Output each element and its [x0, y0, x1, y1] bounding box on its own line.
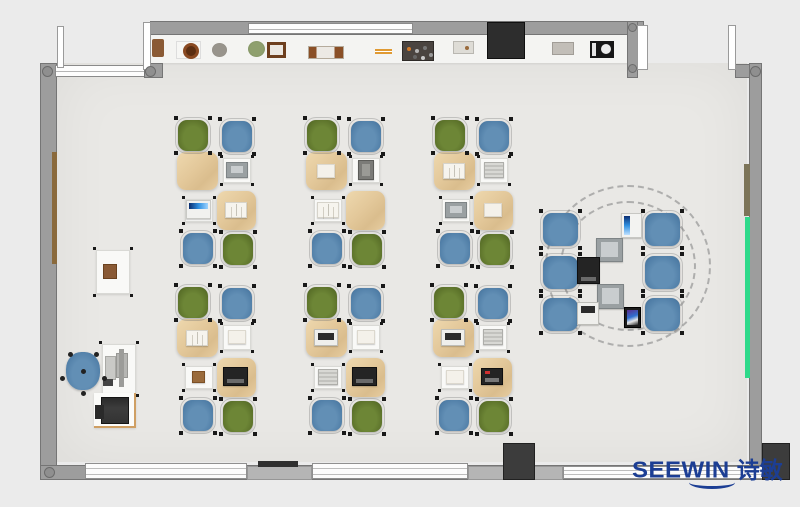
- furniture-foot: [213, 264, 217, 268]
- door-frame-d: [728, 25, 736, 70]
- furniture-foot: [641, 294, 645, 298]
- furniture-foot: [539, 209, 543, 213]
- furniture-foot: [93, 294, 96, 297]
- furniture-foot: [430, 283, 434, 287]
- desk-item-laptop-dark-red: [481, 368, 503, 385]
- collab-device-phone-color: [624, 307, 641, 328]
- furniture-foot: [464, 318, 468, 322]
- furniture-foot: [342, 222, 345, 225]
- furniture-foot: [342, 229, 346, 233]
- furniture-foot: [220, 183, 223, 186]
- furniture-foot: [218, 284, 222, 288]
- furniture-foot: [253, 397, 257, 401]
- furniture-foot: [510, 265, 514, 269]
- furniture-foot: [303, 151, 307, 155]
- student-chair-blue: [222, 121, 252, 152]
- window-top: [248, 23, 413, 34]
- desk-item-book: [186, 330, 208, 346]
- desk-item-laptop-dark: [223, 367, 248, 386]
- furniture-foot: [348, 265, 352, 269]
- shelf-item-ring-pot: [176, 41, 201, 59]
- furniture-foot: [337, 116, 341, 120]
- board-green-right: [745, 217, 750, 378]
- furniture-foot: [475, 397, 479, 401]
- furniture-foot: [130, 247, 133, 250]
- furniture-foot: [182, 196, 185, 199]
- furniture-foot: [342, 396, 346, 400]
- desk-item-paper-small: [192, 371, 205, 383]
- furniture-foot: [435, 431, 439, 435]
- furniture-foot: [252, 152, 256, 156]
- student-chair-blue: [440, 233, 470, 264]
- student-desk-tan: [346, 191, 385, 230]
- furniture-foot: [179, 229, 183, 233]
- furniture-foot: [476, 230, 480, 234]
- furniture-foot: [641, 252, 645, 256]
- student-chair-green: [352, 234, 382, 265]
- furniture-foot: [252, 117, 256, 121]
- furniture-foot: [539, 252, 543, 256]
- desk-item-laptop-white: [441, 329, 465, 346]
- furniture-foot: [218, 117, 222, 121]
- furniture-foot: [347, 319, 351, 323]
- furniture-foot: [430, 318, 434, 322]
- collab-device-laptop-gray: [596, 238, 623, 262]
- furniture-foot: [219, 397, 223, 401]
- furniture-foot: [539, 294, 543, 298]
- furniture-foot: [219, 230, 223, 234]
- furniture-foot: [251, 350, 254, 353]
- desk-item-laptop-dark: [352, 367, 377, 386]
- student-chair-blue: [183, 233, 213, 264]
- furniture-foot: [218, 152, 222, 156]
- furniture-foot: [470, 222, 473, 225]
- furniture-foot: [342, 264, 346, 268]
- desk-item-laptop-gray: [226, 162, 248, 178]
- furniture-foot: [680, 331, 684, 335]
- furniture-foot: [431, 116, 435, 120]
- desk-item-paper: [484, 203, 502, 217]
- furniture-foot: [182, 222, 185, 225]
- seewin-logo: SEEWIN 诗敏: [632, 451, 783, 485]
- furniture-foot: [213, 222, 216, 225]
- furniture-foot: [303, 318, 307, 322]
- furniture-foot: [342, 389, 345, 392]
- furniture-foot: [510, 230, 514, 234]
- shelf-item-vase: [152, 39, 164, 57]
- furniture-foot: [342, 196, 345, 199]
- board-olive-right: [744, 164, 750, 216]
- furniture-foot: [469, 389, 472, 392]
- pier-cap-topright: [750, 66, 761, 77]
- furniture-foot: [253, 265, 257, 269]
- furniture-foot: [253, 432, 257, 436]
- furniture-foot: [438, 389, 441, 392]
- desk-item-book: [317, 202, 339, 218]
- furniture-foot: [348, 432, 352, 436]
- furniture-foot: [578, 209, 582, 213]
- furniture-foot: [477, 183, 480, 186]
- furniture-foot: [251, 183, 254, 186]
- furniture-foot: [381, 319, 385, 323]
- furniture-foot: [342, 431, 346, 435]
- furniture-foot: [308, 264, 312, 268]
- furniture-foot: [474, 284, 478, 288]
- furniture-foot: [381, 117, 385, 121]
- furniture-foot: [509, 397, 513, 401]
- furniture-foot: [174, 318, 178, 322]
- cabinet-top: [487, 22, 525, 59]
- furniture-foot: [470, 229, 474, 233]
- furniture-foot: [253, 230, 257, 234]
- furniture-foot: [380, 350, 383, 353]
- student-chair-green: [307, 287, 337, 318]
- furniture-foot: [174, 151, 178, 155]
- furniture-foot: [509, 117, 513, 121]
- student-chair-green: [223, 401, 253, 432]
- furniture-foot: [475, 152, 479, 156]
- furniture-foot: [509, 432, 513, 436]
- student-chair-blue: [478, 288, 508, 319]
- collab-device-laptop-gray: [597, 284, 624, 309]
- furniture-foot: [208, 151, 212, 155]
- furniture-foot: [469, 363, 472, 366]
- shelf-item-frame: [267, 42, 286, 58]
- door-frame-a: [57, 26, 64, 68]
- furniture-foot: [348, 230, 352, 234]
- furniture-foot: [179, 264, 183, 268]
- furniture-foot: [308, 396, 312, 400]
- furniture-foot: [213, 396, 217, 400]
- student-chair-blue: [439, 400, 469, 431]
- furniture-foot: [539, 246, 543, 250]
- student-chair-green: [178, 120, 208, 151]
- pier-cap-alcove-bottom: [628, 64, 637, 73]
- furniture-foot: [303, 283, 307, 287]
- furniture-foot: [436, 229, 440, 233]
- side-desk-item: [103, 264, 117, 279]
- student-chair-green: [178, 287, 208, 318]
- furniture-foot: [507, 350, 510, 353]
- furniture-foot: [469, 431, 473, 435]
- furniture-foot: [465, 116, 469, 120]
- furniture-foot: [641, 246, 645, 250]
- student-chair-blue: [351, 288, 381, 319]
- pier-cap-topleft2: [145, 66, 156, 77]
- furniture-foot: [213, 229, 217, 233]
- furniture-foot: [337, 283, 341, 287]
- desk-item-laptop-white: [314, 329, 338, 346]
- window-bottom-2: [312, 463, 468, 479]
- desk-item-book: [225, 202, 247, 218]
- furniture-foot: [382, 230, 386, 234]
- shelf-item-tray: [453, 41, 474, 54]
- furniture-foot: [219, 265, 223, 269]
- furniture-foot: [539, 289, 543, 293]
- sill-marker: [258, 461, 298, 467]
- furniture-foot: [220, 350, 223, 353]
- desk-item-book-gray: [318, 369, 338, 385]
- shelf-item-round-pot: [212, 43, 227, 57]
- furniture-foot: [381, 152, 385, 156]
- furniture-foot: [508, 319, 512, 323]
- furniture-foot: [303, 116, 307, 120]
- furniture-foot: [342, 363, 345, 366]
- desk-item-book-gray: [484, 162, 504, 178]
- furniture-foot: [130, 294, 133, 297]
- furniture-foot: [337, 151, 341, 155]
- student-chair-green: [479, 401, 509, 432]
- desk-item-paper: [317, 164, 335, 178]
- furniture-foot: [382, 432, 386, 436]
- collab-chair-blue: [543, 256, 578, 289]
- furniture-foot: [469, 396, 473, 400]
- furniture-foot: [578, 331, 582, 335]
- furniture-foot: [680, 289, 684, 293]
- logo-text-cn: 诗敏: [737, 451, 783, 485]
- furniture-foot: [252, 319, 256, 323]
- furniture-foot: [439, 222, 442, 225]
- furniture-foot: [311, 389, 314, 392]
- furniture-foot: [641, 289, 645, 293]
- furniture-foot: [439, 196, 442, 199]
- logo-smile-arc: [689, 476, 735, 489]
- furniture-foot: [578, 252, 582, 256]
- furniture-foot: [347, 284, 351, 288]
- furniture-foot: [136, 341, 139, 344]
- furniture-foot: [381, 284, 385, 288]
- collab-chair-blue: [543, 298, 578, 331]
- collab-chair-blue: [645, 213, 680, 246]
- furniture-foot: [347, 117, 351, 121]
- furniture-foot: [465, 151, 469, 155]
- student-chair-green: [223, 234, 253, 265]
- desk-item-paper: [446, 370, 464, 384]
- furniture-foot: [470, 264, 474, 268]
- monitor-arm: [119, 349, 124, 387]
- pier-cap-bottomleft: [44, 467, 55, 478]
- furniture-foot: [578, 246, 582, 250]
- furniture-foot: [182, 389, 185, 392]
- student-chair-blue: [312, 400, 342, 431]
- furniture-foot: [208, 318, 212, 322]
- furniture-foot: [382, 397, 386, 401]
- pier-cap-topleft: [42, 66, 53, 77]
- furniture-foot: [349, 183, 352, 186]
- student-chair-green: [480, 234, 510, 265]
- furniture-foot: [208, 116, 212, 120]
- shelf-item-books: [308, 46, 344, 59]
- furniture-foot: [136, 394, 139, 397]
- furniture-foot: [641, 331, 645, 335]
- window-bottom-1: [85, 463, 247, 479]
- collab-device-laptop-white: [577, 302, 599, 325]
- furniture-foot: [680, 246, 684, 250]
- desk-item-tablet-dark: [358, 160, 374, 180]
- furniture-foot: [474, 319, 478, 323]
- desk-item-paper: [228, 330, 246, 344]
- student-chair-blue: [183, 400, 213, 431]
- student-desk-tan: [177, 152, 218, 190]
- furniture-foot: [93, 247, 96, 250]
- classroom-floor-plan: SEEWIN 诗敏: [0, 0, 800, 507]
- student-chair-green: [434, 287, 464, 318]
- door-frame-c: [637, 25, 648, 70]
- student-chair-blue: [222, 288, 252, 319]
- shelf-item-speaker: [590, 41, 614, 58]
- board-brown-left: [52, 152, 57, 264]
- printer: [101, 397, 129, 424]
- furniture-foot: [509, 152, 513, 156]
- furniture-foot: [680, 209, 684, 213]
- collab-chair-blue: [645, 298, 680, 331]
- wall-left: [40, 63, 57, 480]
- teacher-chair: [66, 352, 100, 390]
- window-topleft: [55, 65, 146, 77]
- shelf-item-toolboard: [402, 41, 434, 61]
- furniture-foot: [680, 252, 684, 256]
- furniture-foot: [348, 397, 352, 401]
- desk-item-book-gray: [483, 329, 503, 345]
- collab-device-tablet-blue: [621, 213, 642, 238]
- student-chair-blue: [351, 121, 381, 152]
- shelf-item-plant: [248, 41, 265, 57]
- furniture-foot: [311, 363, 314, 366]
- furniture-foot: [311, 196, 314, 199]
- furniture-foot: [539, 331, 543, 335]
- furniture-foot: [213, 389, 216, 392]
- furniture-foot: [174, 116, 178, 120]
- monitor-panel-left: [105, 356, 116, 380]
- furniture-foot: [476, 265, 480, 269]
- furniture-foot: [213, 363, 216, 366]
- student-chair-blue: [479, 121, 509, 152]
- furniture-foot: [174, 283, 178, 287]
- desk-item-laptop-gray: [445, 202, 467, 218]
- furniture-foot: [435, 396, 439, 400]
- student-chair-green: [435, 120, 465, 151]
- furniture-foot: [347, 152, 351, 156]
- desk-item-book: [443, 163, 465, 179]
- furniture-foot: [470, 196, 473, 199]
- collab-device-laptop-dark: [577, 257, 600, 284]
- furniture-foot: [431, 151, 435, 155]
- furniture-foot: [308, 229, 312, 233]
- furniture-foot: [382, 265, 386, 269]
- pier-dark-bottom: [503, 443, 535, 480]
- desk-item-laptop-blue: [186, 200, 211, 219]
- furniture-foot: [219, 432, 223, 436]
- furniture-foot: [475, 432, 479, 436]
- collab-chair-blue: [543, 213, 578, 246]
- student-chair-green: [307, 120, 337, 151]
- furniture-foot: [578, 289, 582, 293]
- desk-item-small: [103, 379, 113, 386]
- furniture-foot: [349, 350, 352, 353]
- desk-item-paper: [357, 330, 375, 344]
- furniture-foot: [179, 396, 183, 400]
- furniture-foot: [311, 222, 314, 225]
- furniture-foot: [337, 318, 341, 322]
- shelf-item-pencils: [375, 49, 392, 55]
- door-frame-b: [143, 22, 151, 70]
- furniture-foot: [99, 341, 102, 344]
- furniture-foot: [252, 284, 256, 288]
- furniture-foot: [475, 117, 479, 121]
- furniture-foot: [380, 183, 383, 186]
- furniture-foot: [179, 431, 183, 435]
- pier-bottom-1: [247, 466, 312, 480]
- student-chair-green: [352, 401, 382, 432]
- furniture-foot: [308, 431, 312, 435]
- furniture-foot: [218, 319, 222, 323]
- furniture-foot: [508, 183, 511, 186]
- pier-cap-alcove-top: [628, 23, 637, 32]
- shelf-item-box: [552, 42, 574, 55]
- furniture-foot: [208, 283, 212, 287]
- furniture-foot: [508, 284, 512, 288]
- furniture-foot: [213, 431, 217, 435]
- furniture-foot: [578, 294, 582, 298]
- student-chair-blue: [312, 233, 342, 264]
- furniture-foot: [464, 283, 468, 287]
- furniture-foot: [182, 363, 185, 366]
- furniture-foot: [436, 264, 440, 268]
- collab-chair-blue: [645, 256, 680, 289]
- furniture-foot: [476, 350, 479, 353]
- furniture-foot: [438, 363, 441, 366]
- wall-right: [749, 63, 762, 480]
- furniture-foot: [213, 196, 216, 199]
- furniture-foot: [680, 294, 684, 298]
